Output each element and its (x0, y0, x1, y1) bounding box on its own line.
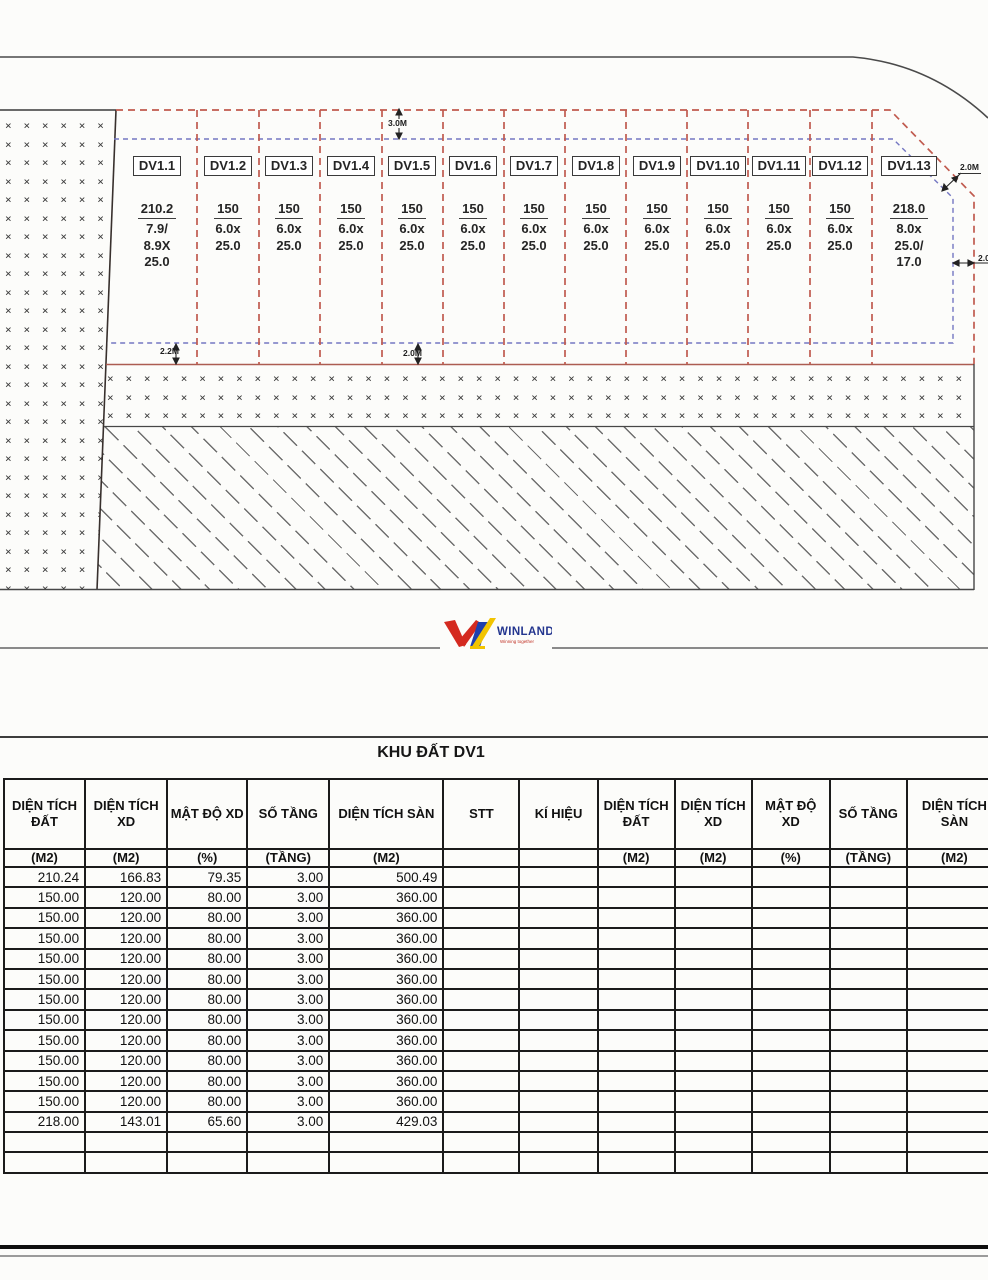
table-cell (443, 1112, 519, 1132)
road-edge-line (0, 57, 988, 118)
table-cell (598, 908, 675, 928)
table-cell (752, 1010, 830, 1030)
table-cell (443, 887, 519, 907)
table-cell: 150.00 (4, 1091, 85, 1111)
table-cell: 166.83 (85, 867, 167, 887)
table-row: 150.00120.0080.003.00360.00 (4, 969, 988, 989)
column-unit: (M2) (85, 849, 167, 867)
table-cell (443, 1132, 519, 1152)
table-cell (907, 1051, 988, 1071)
table-cell: 150.00 (4, 928, 85, 948)
table-cell: 80.00 (167, 887, 247, 907)
table-cell: 120.00 (85, 949, 167, 969)
table-cell: 150.00 (4, 989, 85, 1009)
table-cell (443, 1071, 519, 1091)
plot-area-value: 150 (582, 202, 610, 219)
table-cell: 79.35 (167, 867, 247, 887)
table-cell: 3.00 (247, 887, 329, 907)
table-cell (752, 949, 830, 969)
table-cell: 3.00 (247, 867, 329, 887)
table-cell: 360.00 (329, 887, 443, 907)
table-cell (830, 1071, 907, 1091)
table-cell: 120.00 (85, 989, 167, 1009)
table-row: 150.00120.0080.003.00360.00 (4, 1010, 988, 1030)
table-cell: 80.00 (167, 1010, 247, 1030)
table-cell: 360.00 (329, 908, 443, 928)
table-cell: 120.00 (85, 969, 167, 989)
table-cell (519, 1071, 597, 1091)
table-cell (752, 989, 830, 1009)
table-cell: 3.00 (247, 969, 329, 989)
table-cell: 3.00 (247, 949, 329, 969)
plot-area-value: 150 (765, 202, 793, 219)
plot-id-label: DV1.12 (812, 156, 867, 176)
table-cell (752, 928, 830, 948)
table-cell (247, 1152, 329, 1172)
table-cell (519, 908, 597, 928)
column-header: STT (443, 779, 519, 849)
table-cell (675, 1091, 752, 1111)
table-cell (519, 1010, 597, 1030)
table-cell: 500.49 (329, 867, 443, 887)
plot-area-value: 150 (459, 202, 487, 219)
table-cell (830, 949, 907, 969)
plot-id-label: DV1.13 (881, 156, 936, 176)
table-row: 150.00120.0080.003.00360.00 (4, 1051, 988, 1071)
table-cell (443, 1152, 519, 1172)
dimension-label-right-lower: 2.0M (978, 254, 988, 263)
table-cell (598, 1010, 675, 1030)
table-row: 150.00120.0080.003.00360.00 (4, 1071, 988, 1091)
column-unit: (M2) (329, 849, 443, 867)
table-cell (752, 1071, 830, 1091)
plot-area-value: 150 (275, 202, 303, 219)
table-cell (598, 989, 675, 1009)
table-cell (443, 928, 519, 948)
table-cell: 3.00 (247, 1030, 329, 1050)
table-cell (85, 1152, 167, 1172)
table-cell (167, 1152, 247, 1172)
table-cell: 80.00 (167, 908, 247, 928)
table-cell: 3.00 (247, 1051, 329, 1071)
table-cell: 360.00 (329, 1091, 443, 1111)
table-cell (519, 1051, 597, 1071)
table-cell (675, 989, 752, 1009)
table-cell (907, 1071, 988, 1091)
plot-area-value: 150 (214, 202, 242, 219)
column-header: DIỆN TÍCH ĐẤT (4, 779, 85, 849)
table-cell: 210.24 (4, 867, 85, 887)
table-cell (830, 1132, 907, 1152)
table-cell: 3.00 (247, 1091, 329, 1111)
table-row (4, 1152, 988, 1172)
table-cell (830, 1051, 907, 1071)
table-cell: 150.00 (4, 1071, 85, 1091)
table-cell: 80.00 (167, 1051, 247, 1071)
table-cell: 3.00 (247, 989, 329, 1009)
column-header: MẬT ĐỘ XD (167, 779, 247, 849)
table-cell (247, 1132, 329, 1152)
table-cell (598, 1071, 675, 1091)
table-cell (519, 949, 597, 969)
plot-dv1-13: DV1.13218.08.0x25.0/17.0 (864, 156, 954, 271)
table-cell (519, 1112, 597, 1132)
table-cell (907, 949, 988, 969)
table-cell (752, 969, 830, 989)
table-cell (519, 1152, 597, 1172)
table-cell (907, 928, 988, 948)
plot-area-value: 150 (704, 202, 732, 219)
table-title: KHU ĐẤT DV1 (0, 744, 862, 762)
bottom-black-bar (0, 1245, 988, 1249)
column-unit: (M2) (675, 849, 752, 867)
table-cell (329, 1132, 443, 1152)
table-cell (907, 1132, 988, 1152)
table-cell (907, 989, 988, 1009)
table-cell: 80.00 (167, 1030, 247, 1050)
table-cell: 218.00 (4, 1112, 85, 1132)
table-cell (598, 1091, 675, 1111)
column-header: MẬT ĐỘ XD (752, 779, 830, 849)
table-cell (598, 1152, 675, 1172)
table-cell (598, 1112, 675, 1132)
table-cell: 150.00 (4, 1030, 85, 1050)
plot-id-label: DV1.1 (133, 156, 181, 176)
table-cell (443, 969, 519, 989)
bottom-gray-bar (0, 1255, 988, 1257)
dimension-label-bottom-left: 2.2M (160, 347, 179, 356)
table-cell: 360.00 (329, 949, 443, 969)
table-cell (519, 969, 597, 989)
table-cell (675, 969, 752, 989)
table-cell: 120.00 (85, 1071, 167, 1091)
table-cell (752, 1112, 830, 1132)
table-row: 218.00143.0165.603.00429.03 (4, 1112, 988, 1132)
table-cell: 150.00 (4, 887, 85, 907)
table-cell (598, 1030, 675, 1050)
table-cell: 360.00 (329, 1030, 443, 1050)
table-row: 150.00120.0080.003.00360.00 (4, 989, 988, 1009)
table-cell (675, 1152, 752, 1172)
table-cell (519, 1091, 597, 1111)
table-cell (598, 1132, 675, 1152)
table-cell (830, 867, 907, 887)
plot-area-value: 150 (643, 202, 671, 219)
column-unit: (M2) (907, 849, 988, 867)
table-cell (519, 867, 597, 887)
table-cell (830, 969, 907, 989)
table-cell (907, 1091, 988, 1111)
column-header: SỐ TẦNG (247, 779, 329, 849)
table-cell: 3.00 (247, 1112, 329, 1132)
table-cell (830, 1030, 907, 1050)
table-cell (598, 949, 675, 969)
table-cell: 120.00 (85, 1091, 167, 1111)
table-cell (443, 908, 519, 928)
table-cell (752, 1152, 830, 1172)
land-area-table: DIỆN TÍCH ĐẤTDIỆN TÍCH XDMẬT ĐỘ XDSỐ TẦN… (3, 778, 988, 1174)
table-cell (907, 1112, 988, 1132)
table-cell: 360.00 (329, 1071, 443, 1091)
column-unit: (M2) (4, 849, 85, 867)
table-cell (443, 989, 519, 1009)
table-cell: 65.60 (167, 1112, 247, 1132)
table-cell (675, 867, 752, 887)
table-row: 150.00120.0080.003.00360.00 (4, 887, 988, 907)
table-cell (675, 1051, 752, 1071)
table-cell: 120.00 (85, 1051, 167, 1071)
table-cell (907, 887, 988, 907)
logo-wordmark: WINLAND (497, 626, 552, 638)
plot-area-value: 150 (520, 202, 548, 219)
column-header: SỐ TẦNG (830, 779, 907, 849)
table-cell (830, 1091, 907, 1111)
table-cell (907, 1030, 988, 1050)
table-cell (907, 1010, 988, 1030)
plot-size-line: 17.0 (864, 254, 954, 271)
table-cell (830, 928, 907, 948)
table-cell: 80.00 (167, 1091, 247, 1111)
dimension-label-right-upper: 2.0M (958, 163, 981, 174)
table-cell (675, 1030, 752, 1050)
table-cell: 80.00 (167, 989, 247, 1009)
table-cell: 150.00 (4, 969, 85, 989)
plot-area-value: 150 (826, 202, 854, 219)
table-cell (4, 1152, 85, 1172)
table-row: 150.00120.0080.003.00360.00 (4, 949, 988, 969)
table-cell (675, 949, 752, 969)
table-cell: 80.00 (167, 949, 247, 969)
table-cell: 150.00 (4, 949, 85, 969)
plot-size-line: 25.0 (112, 254, 202, 271)
table-cell (85, 1132, 167, 1152)
column-header: DIỆN TÍCH ĐẤT (598, 779, 675, 849)
table-cell: 143.01 (85, 1112, 167, 1132)
table-cell (675, 1132, 752, 1152)
table-cell: 150.00 (4, 1010, 85, 1030)
table-cell (329, 1152, 443, 1172)
table-cell (752, 1030, 830, 1050)
table-cell: 120.00 (85, 928, 167, 948)
table-cell: 3.00 (247, 928, 329, 948)
table-cell (675, 908, 752, 928)
column-header: DIỆN TÍCH SÀN (907, 779, 988, 849)
table-cell (675, 928, 752, 948)
table-cell (443, 1051, 519, 1071)
table-cell: 120.00 (85, 1030, 167, 1050)
table-cell (907, 1152, 988, 1172)
table-row: 150.00120.0080.003.00360.00 (4, 908, 988, 928)
table-cell (830, 1112, 907, 1132)
table-cell (443, 1091, 519, 1111)
table-cell (830, 1010, 907, 1030)
column-unit (443, 849, 519, 867)
table-cell (443, 1010, 519, 1030)
table-row (4, 1132, 988, 1152)
table-cell: 120.00 (85, 887, 167, 907)
table-cell: 120.00 (85, 1010, 167, 1030)
table-cell (443, 1030, 519, 1050)
column-header: DIỆN TÍCH SÀN (329, 779, 443, 849)
column-header: DIỆN TÍCH XD (85, 779, 167, 849)
logo-tagline: Winning together (500, 639, 535, 644)
table-cell: 3.00 (247, 908, 329, 928)
table-row: 150.00120.0080.003.00360.00 (4, 928, 988, 948)
table-row: 150.00120.0080.003.00360.00 (4, 1030, 988, 1050)
column-unit: (%) (167, 849, 247, 867)
table-cell (598, 969, 675, 989)
table-cell (830, 887, 907, 907)
column-header: DIỆN TÍCH XD (675, 779, 752, 849)
table-cell: 360.00 (329, 989, 443, 1009)
dimension-label-top: 3.0M (386, 119, 409, 128)
column-unit: (%) (752, 849, 830, 867)
table-cell (519, 1132, 597, 1152)
table-cell (519, 928, 597, 948)
column-unit: (M2) (598, 849, 675, 867)
table-cell (443, 867, 519, 887)
table-cell (675, 1112, 752, 1132)
table-cell (598, 867, 675, 887)
table-cell: 360.00 (329, 1051, 443, 1071)
table-cell (598, 887, 675, 907)
table-cell (675, 1071, 752, 1091)
table-cell: 360.00 (329, 928, 443, 948)
table-cell: 80.00 (167, 1071, 247, 1091)
column-unit: (TẦNG) (247, 849, 329, 867)
table-cell (443, 949, 519, 969)
table-cell (830, 908, 907, 928)
table-cell: 150.00 (4, 908, 85, 928)
table-cell: 150.00 (4, 1051, 85, 1071)
winland-logo: WINLAND Winning together (440, 614, 552, 654)
table-cell: 429.03 (329, 1112, 443, 1132)
table-cell (830, 1152, 907, 1172)
table-cell: 360.00 (329, 1010, 443, 1030)
table-cell (752, 1091, 830, 1111)
column-unit (519, 849, 597, 867)
table-cell (519, 1030, 597, 1050)
plot-area-value: 150 (337, 202, 365, 219)
plot-area-value: 210.2 (138, 202, 177, 219)
table-cell (167, 1132, 247, 1152)
plot-area-value: 150 (398, 202, 426, 219)
table-cell (598, 928, 675, 948)
table-cell (752, 1051, 830, 1071)
table-row: 210.24166.8379.353.00500.49 (4, 867, 988, 887)
table-cell (830, 989, 907, 1009)
plot-size-line: 8.0x (864, 221, 954, 238)
table-cell: 80.00 (167, 928, 247, 948)
table-cell (675, 1010, 752, 1030)
table-cell (4, 1132, 85, 1152)
table-cell (752, 908, 830, 928)
column-header: KÍ HIỆU (519, 779, 597, 849)
plot-size-line: 25.0/ (864, 238, 954, 255)
dimension-label-bottom-mid: 2.0M (403, 349, 422, 358)
table-cell (598, 1051, 675, 1071)
plot-area-value: 218.0 (890, 202, 929, 219)
table-cell (519, 989, 597, 1009)
table-cell: 80.00 (167, 969, 247, 989)
table-cell (907, 867, 988, 887)
table-cell (907, 969, 988, 989)
table-cell: 3.00 (247, 1010, 329, 1030)
table-row: 150.00120.0080.003.00360.00 (4, 1091, 988, 1111)
table-cell (519, 887, 597, 907)
table-cell: 120.00 (85, 908, 167, 928)
column-unit: (TẦNG) (830, 849, 907, 867)
table-cell (675, 887, 752, 907)
table-cell: 3.00 (247, 1071, 329, 1091)
table-cell (752, 1132, 830, 1152)
site-plan-sheet: × × × × × × × × × × × × × × × × × × × × … (0, 0, 988, 1280)
table-cell (907, 908, 988, 928)
table-cell (752, 867, 830, 887)
table-cell (752, 887, 830, 907)
table-cell: 360.00 (329, 969, 443, 989)
